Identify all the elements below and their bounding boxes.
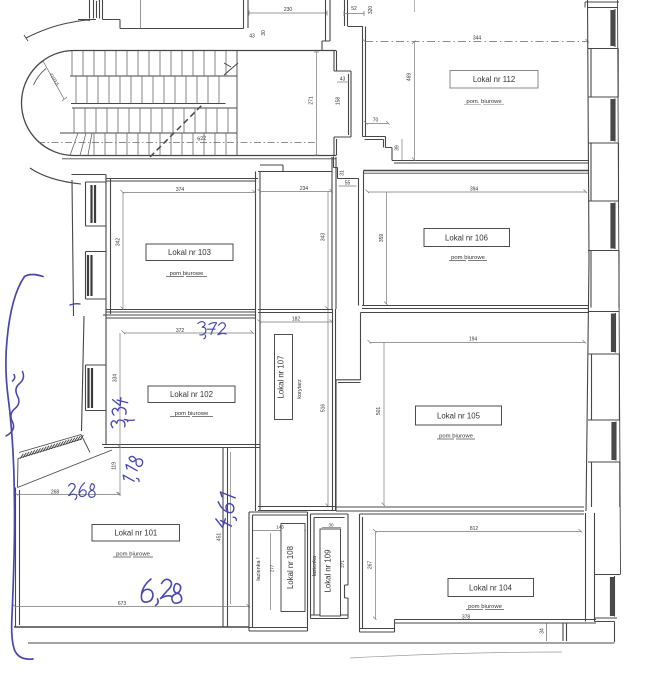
svg-text:119: 119 — [112, 462, 118, 470]
svg-text:30: 30 — [261, 30, 267, 36]
svg-text:Lokal nr 103: Lokal nr 103 — [168, 248, 211, 257]
svg-text:394: 394 — [470, 187, 479, 193]
svg-text:812: 812 — [470, 526, 479, 532]
svg-text:31: 31 — [340, 170, 346, 176]
svg-text:39: 39 — [395, 145, 401, 151]
svg-text:55: 55 — [345, 181, 351, 187]
svg-text:271: 271 — [309, 96, 315, 105]
svg-text:Lokal nr 104: Lokal nr 104 — [469, 583, 513, 592]
svg-text:234: 234 — [300, 186, 309, 192]
svg-text:Lokal nr 107: Lokal nr 107 — [277, 356, 286, 399]
svg-text:359: 359 — [379, 234, 385, 243]
svg-text:43: 43 — [340, 77, 346, 83]
svg-text:Lokal nr 112: Lokal nr 112 — [473, 75, 515, 84]
svg-text:Lokal nr 105: Lokal nr 105 — [437, 411, 481, 420]
svg-text:Lokal nr 101: Lokal nr 101 — [114, 529, 157, 538]
svg-text:korytarz: korytarz — [297, 379, 303, 399]
svg-text:30: 30 — [328, 523, 334, 528]
svg-text:194: 194 — [469, 337, 478, 343]
svg-text:320: 320 — [368, 6, 374, 15]
svg-text:673: 673 — [118, 601, 127, 607]
svg-text:378: 378 — [462, 615, 471, 621]
svg-text:501: 501 — [376, 407, 382, 416]
svg-text:268: 268 — [51, 490, 60, 496]
svg-text:143: 143 — [276, 525, 284, 530]
svg-text:277: 277 — [270, 564, 275, 572]
svg-text:43: 43 — [249, 34, 255, 40]
svg-text:pom biurowe: pom biurowe — [468, 604, 502, 610]
svg-text:Lokal nr 109: Lokal nr 109 — [324, 550, 333, 593]
svg-text:pom biurowe: pom biurowe — [451, 255, 485, 261]
svg-text:230: 230 — [284, 7, 293, 13]
svg-text:469: 469 — [407, 73, 413, 82]
svg-text:Lokal nr 106: Lokal nr 106 — [445, 233, 488, 242]
svg-text:451: 451 — [217, 533, 223, 542]
svg-text:70: 70 — [373, 118, 379, 124]
svg-text:271: 271 — [340, 560, 345, 568]
svg-text:łazienka: łazienka — [312, 555, 318, 576]
svg-text:34: 34 — [540, 628, 546, 634]
svg-text:52: 52 — [351, 6, 357, 12]
svg-text:374: 374 — [176, 187, 185, 193]
svg-text:158: 158 — [336, 97, 342, 106]
svg-text:516: 516 — [321, 404, 327, 413]
svg-text:372: 372 — [176, 328, 185, 334]
svg-text:pom biurowe: pom biurowe — [175, 411, 209, 417]
svg-text:pom biurowe: pom biurowe — [116, 552, 150, 558]
svg-text:182: 182 — [292, 317, 301, 323]
svg-text:pom biurowe: pom biurowe — [170, 271, 204, 277]
svg-text:342: 342 — [116, 238, 122, 247]
svg-text:343: 343 — [321, 233, 327, 242]
svg-text:Lokal nr 108: Lokal nr 108 — [286, 546, 295, 589]
svg-text:344: 344 — [473, 36, 482, 42]
svg-text:łazienka !: łazienka ! — [256, 557, 262, 581]
svg-text:622: 622 — [197, 135, 207, 142]
svg-text:pom. biurowe: pom. biurowe — [466, 99, 502, 105]
svg-text:Lokal nr 102: Lokal nr 102 — [170, 390, 213, 399]
svg-text:267: 267 — [368, 561, 374, 570]
svg-text:334: 334 — [113, 374, 119, 383]
svg-text:pom biurowe: pom biurowe — [439, 434, 473, 440]
